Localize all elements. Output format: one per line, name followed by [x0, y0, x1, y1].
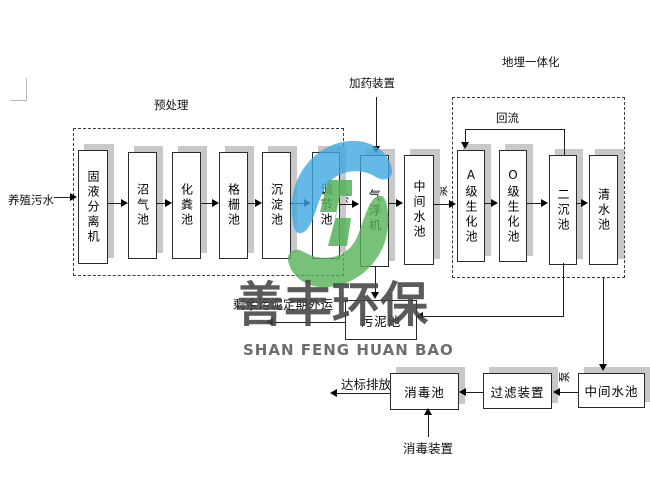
flow-line [433, 204, 449, 205]
flow-line [54, 197, 70, 198]
arrowhead [165, 199, 172, 207]
solid-liquid-separator-box: 固液分离机 [78, 150, 108, 264]
biogas-pool-box: 沼气池 [128, 152, 157, 259]
disinfection-pool-box: 消毒池 [390, 373, 459, 410]
a-grade-biochemical-pool-box: A级生化池 [457, 150, 485, 262]
sludge-out-line [273, 322, 345, 323]
septic-tank-box: 化粪池 [172, 152, 201, 259]
arrowhead [304, 199, 311, 207]
discharge-arrowhead [330, 389, 337, 397]
grid-pool-text: 格栅池 [228, 183, 240, 228]
flow-line [484, 203, 491, 204]
air-flotation-machine-text: 气浮机 [369, 189, 381, 234]
arrowhead [396, 199, 403, 207]
regulating-pool-box: 调节池 [312, 152, 340, 259]
watermark-english-text: SHAN FENG HUAN BAO [243, 341, 454, 359]
air-flotation-machine-box: 气浮机 [360, 155, 389, 267]
buried-integration-label: 地埋一体化 [502, 54, 560, 70]
sludge-pool-box: 污泥池 [345, 300, 417, 340]
bottom-arrowhead [459, 388, 466, 396]
sedimentation-to-sludge-arrowhead [416, 312, 423, 320]
clear-water-pool-text: 清水池 [598, 188, 610, 233]
clearwater-down-line [603, 278, 604, 365]
arrowhead [449, 200, 456, 208]
discharge-line [337, 393, 390, 394]
intermediate-pool-2-box: 中间水池 [578, 373, 645, 408]
disinfection-pool-text: 消毒池 [404, 382, 445, 401]
source-label: 养殖污水 [8, 192, 54, 208]
disinfect-up-line [428, 415, 429, 437]
solid-liquid-separator-text: 固液分离机 [87, 170, 99, 245]
intermediate-pool-text: 中间水池 [413, 180, 425, 240]
sedimentation-pool-box: 沉淀池 [262, 152, 291, 259]
clearwater-down-arrowhead [599, 364, 607, 371]
pretreatment-group-label: 预处理 [154, 97, 189, 113]
dosing-device-label: 加药装置 [349, 75, 395, 91]
discharge-label: 达标排放 [341, 374, 391, 393]
flow-line [201, 203, 212, 204]
biogas-pool-text: 沼气池 [137, 183, 149, 228]
regulating-pool-text: 调节池 [320, 183, 332, 228]
intermediate-pool-2-text: 中间水池 [584, 381, 638, 400]
flow-line [388, 203, 396, 204]
airflotation-to-sludge-arrowhead [371, 292, 379, 299]
arrowhead [212, 199, 219, 207]
arrowhead [70, 193, 77, 201]
sludge-pool-text: 污泥池 [361, 311, 402, 330]
arrowhead [491, 199, 498, 207]
grid-pool-box: 格栅池 [219, 152, 248, 259]
flow-line [526, 203, 541, 204]
sedimentation-pool-text: 沉淀池 [271, 183, 283, 228]
reflux-line-across [465, 129, 565, 130]
reflux-line-down [465, 129, 466, 143]
secondary-sedimentation-pool-text: 二沉池 [557, 188, 569, 233]
o-grade-biochemical-pool-text: O级生化池 [507, 168, 519, 245]
septic-tank-text: 化粪池 [181, 183, 193, 228]
flow-line [107, 203, 121, 204]
filter-device-box: 过滤装置 [483, 373, 552, 409]
flow-line [247, 203, 255, 204]
secondary-sedimentation-pool-box: 二沉池 [549, 155, 577, 265]
arrowhead [121, 199, 128, 207]
bottom-flow-line [560, 392, 578, 393]
page-corner-mark-vertical [26, 78, 27, 100]
disinfect-device-label: 消毒装置 [403, 438, 453, 457]
a-grade-biochemical-pool-text: A级生化池 [465, 168, 477, 245]
o-grade-biochemical-pool-box: O级生化池 [499, 150, 527, 262]
arrowhead [255, 199, 262, 207]
clear-water-pool-box: 清水池 [589, 155, 618, 265]
sedimentation-to-sludge-line-h [423, 316, 564, 317]
arrowhead [352, 200, 359, 208]
arrowhead [581, 199, 588, 207]
dosing-arrow-line [376, 97, 377, 146]
sludge-out-arrowhead [266, 318, 273, 326]
reflux-line-up [564, 129, 565, 155]
sludge-note-label: 剩余污泥定期外运 [233, 294, 333, 313]
bottom-flow-line [466, 392, 483, 393]
page-corner-mark-horizontal [10, 100, 27, 101]
reflux-arrowhead [461, 142, 469, 149]
disinfect-up-arrowhead [424, 408, 432, 415]
flow-line [156, 203, 165, 204]
bottom-arrowhead [553, 388, 560, 396]
sedimentation-to-sludge-line-v [563, 263, 564, 317]
flow-line [339, 204, 352, 205]
intermediate-pool-box: 中间水池 [404, 155, 434, 265]
pump-label-3: 泵 [556, 370, 572, 384]
filter-device-text: 过滤装置 [490, 382, 544, 401]
airflotation-to-sludge-line [375, 266, 376, 293]
process-flow-diagram: 养殖污水 预处理 加药装置 地埋一体化 回流 剩余污泥定期外运 达标排放 消毒装… [0, 0, 650, 500]
pump-label-2: 泵 [434, 184, 450, 198]
flow-line [290, 203, 304, 204]
arrowhead [541, 199, 548, 207]
dosing-arrowhead [372, 146, 380, 153]
